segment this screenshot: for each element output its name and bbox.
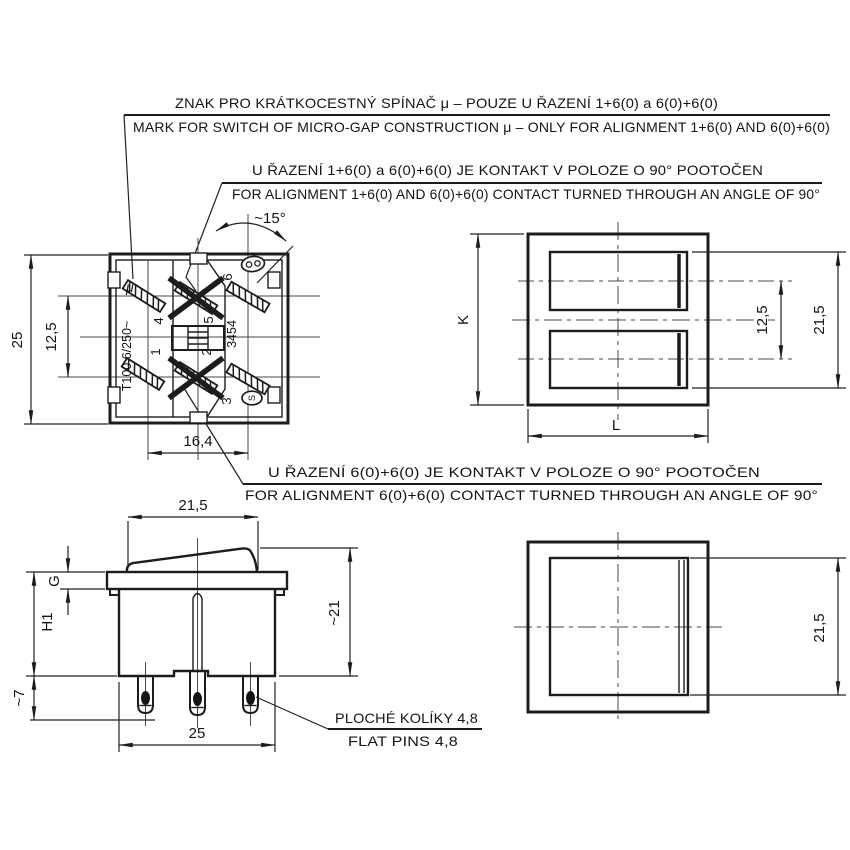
note-alignment1-czech: U ŘAZENÍ 1+6(0) a 6(0)+6(0) JE KONTAKT V… (252, 162, 763, 178)
flange-tab-left (110, 589, 119, 595)
dim-height-25: 25 (9, 332, 26, 349)
dim-H1: H1 (39, 612, 56, 631)
approval-code: 3454 (225, 320, 239, 348)
dim-rocker-width-21-5: 21,5 (178, 497, 207, 514)
micro-gap-symbol: μ (125, 279, 134, 295)
dim-pin-length-7: ~7 (11, 689, 28, 706)
note-alignment1-english: FOR ALIGNMENT 1+6(0) AND 6(0)+6(0) CONTA… (232, 186, 820, 202)
leader-to-flat-pin (256, 697, 328, 729)
housing-back-view: K L 12,5 21,5 (455, 222, 846, 443)
front-view: 21,5 (514, 532, 846, 722)
terminal-number-1: 1 (148, 348, 163, 355)
terminal-view: μ T100 6/250~ 3454 4 1 5 2 6 3 S 25 12,5… (9, 210, 320, 460)
note-flat-pins: PLOCHÉ KOLÍKY 4,8 FLAT PINS 4,8 (256, 697, 482, 749)
dim-pin-spacing-16-4: 16,4 (183, 433, 212, 450)
terminal-number-2: 2 (199, 348, 214, 355)
dim-depth-21: ~21 (326, 600, 343, 625)
approval-letter: S (247, 395, 257, 401)
note-micro-gap-czech: ZNAK PRO KRÁTKOCESTNÝ SPÍNAČ μ – POUZE U… (175, 95, 718, 111)
note-flat-pins-english: FLAT PINS 4,8 (348, 733, 458, 749)
note-alignment2-english: FOR ALIGNMENT 6(0)+6(0) CONTACT TURNED T… (245, 487, 818, 503)
cross-out-terminal-2 (169, 358, 223, 398)
dim-total-width-25: 25 (189, 725, 206, 742)
dim-row-spacing-12-5: 12,5 (43, 322, 60, 351)
mounting-clip-left-bottom (108, 387, 120, 403)
mounting-clip-left-top (108, 272, 120, 288)
type-marking: T100 6/250~ (120, 321, 134, 392)
rocker-actuator (127, 548, 257, 572)
note-flat-pins-czech: PLOCHÉ KOLÍKY 4,8 (335, 710, 478, 726)
dim-window-spacing-12-5: 12,5 (754, 305, 771, 334)
dim-window-span-21-5: 21,5 (811, 305, 828, 334)
mounting-clip-right-top (268, 272, 280, 288)
note-alignment2-czech: U ŘAZENÍ 6(0)+6(0) JE KONTAKT V POLOZE O… (268, 464, 760, 480)
dim-G: G (46, 575, 63, 587)
side-view: 21,5 G H1 ~7 25 ~21 PLOCHÉ KOLÍKY 4,8 FL… (11, 497, 482, 752)
terminal-number-6: 6 (220, 273, 235, 280)
approval-logo-bottom: S (242, 391, 262, 405)
dim-K: K (455, 315, 472, 325)
note-micro-gap-english: MARK FOR SWITCH OF MICRO-GAP CONSTRUCTIO… (133, 119, 830, 135)
terminal-number-4: 4 (151, 317, 166, 324)
approval-logo-top (241, 255, 266, 273)
dim-window-height-21-5: 21,5 (811, 613, 828, 642)
mounting-clip-right-bottom (268, 387, 280, 403)
terminal-number-3: 3 (219, 397, 234, 404)
terminal-number-5: 5 (201, 316, 216, 323)
dim-angle-15: ~15° (254, 210, 285, 227)
mounting-notch-top (190, 253, 207, 264)
dim-L: L (612, 417, 620, 434)
mounting-notch-bottom (190, 412, 207, 423)
cross-out-terminal-5 (169, 278, 223, 318)
technical-drawing: ZNAK PRO KRÁTKOCESTNÝ SPÍNAČ μ – POUZE U… (0, 0, 850, 850)
drawing-page: ZNAK PRO KRÁTKOCESTNÝ SPÍNAČ μ – POUZE U… (0, 0, 850, 850)
flange-tab-right (275, 589, 284, 595)
